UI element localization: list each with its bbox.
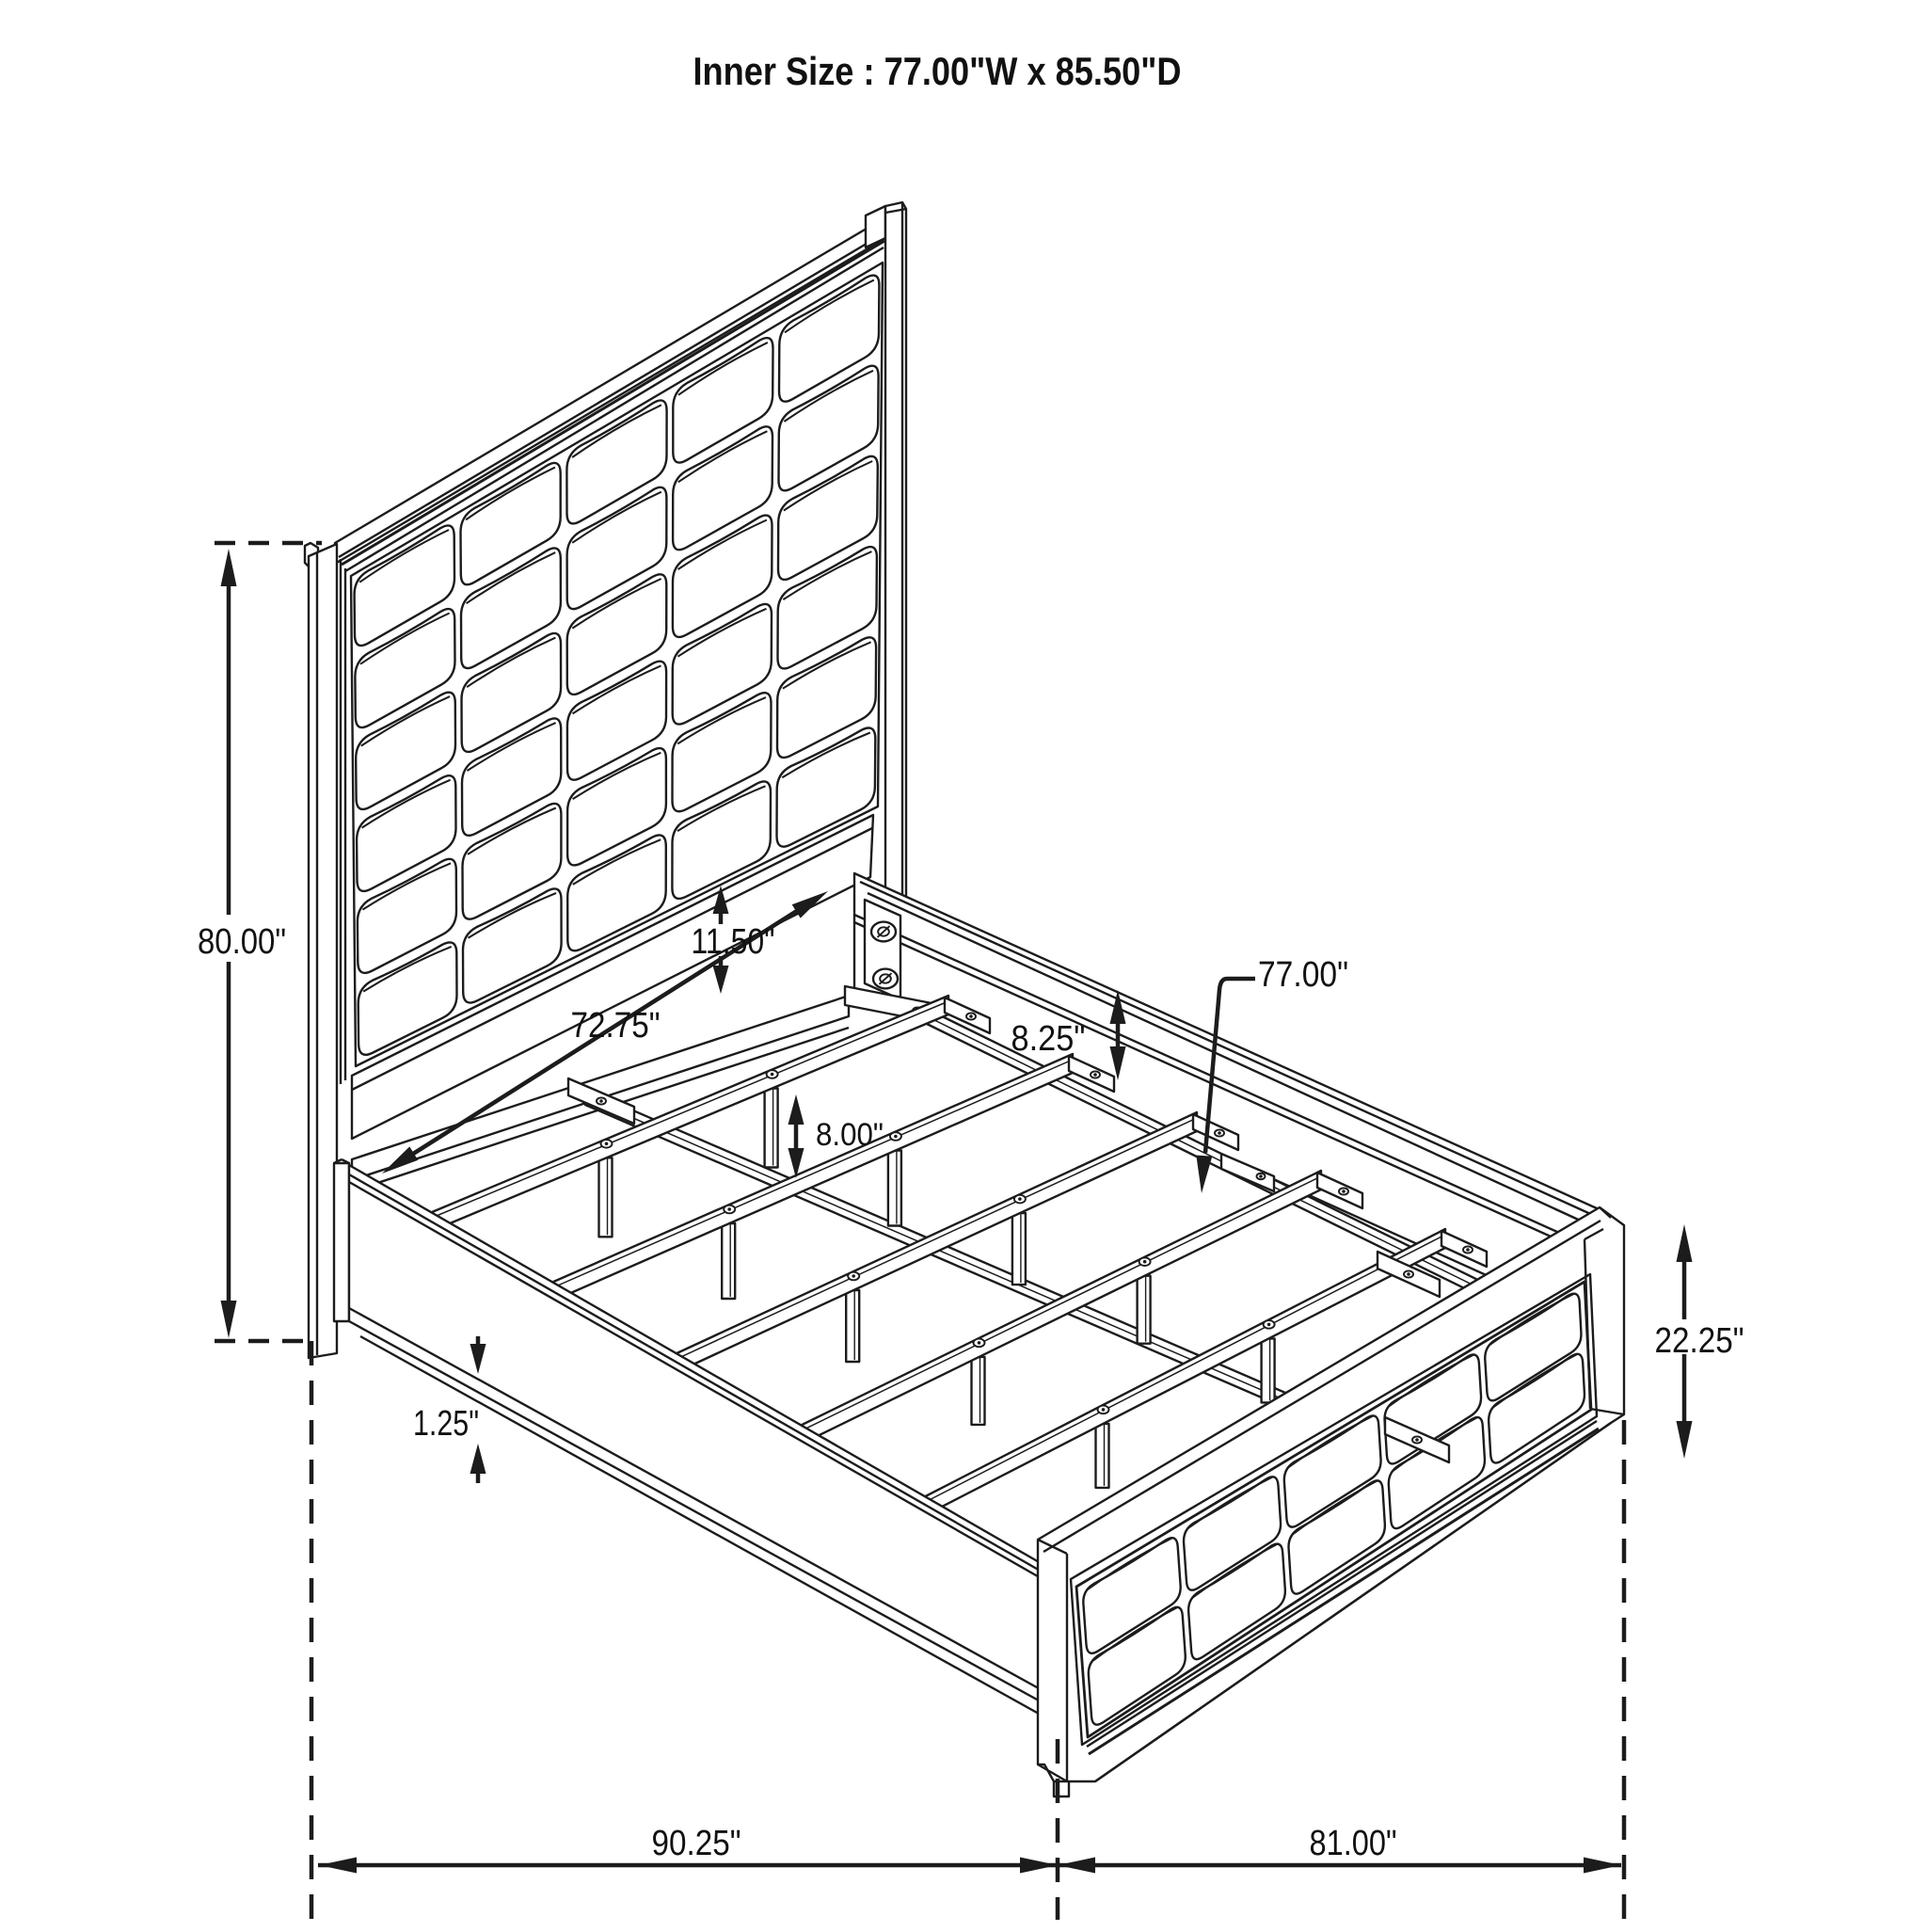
svg-text:72.75": 72.75" — [571, 1006, 661, 1046]
svg-text:77.00": 77.00" — [1258, 955, 1348, 995]
svg-text:22.25": 22.25" — [1655, 1321, 1744, 1361]
svg-text:81.00": 81.00" — [1310, 1824, 1397, 1863]
svg-text:90.25": 90.25" — [652, 1824, 741, 1863]
svg-text:Inner Size : 77.00"W x 85.50"D: Inner Size : 77.00"W x 85.50"D — [693, 49, 1182, 93]
svg-text:1.25": 1.25" — [413, 1404, 479, 1444]
svg-text:8.25": 8.25" — [1011, 1019, 1086, 1059]
svg-text:8.00": 8.00" — [816, 1117, 884, 1153]
svg-text:11.50": 11.50" — [692, 922, 775, 962]
svg-text:80.00": 80.00" — [198, 922, 286, 962]
